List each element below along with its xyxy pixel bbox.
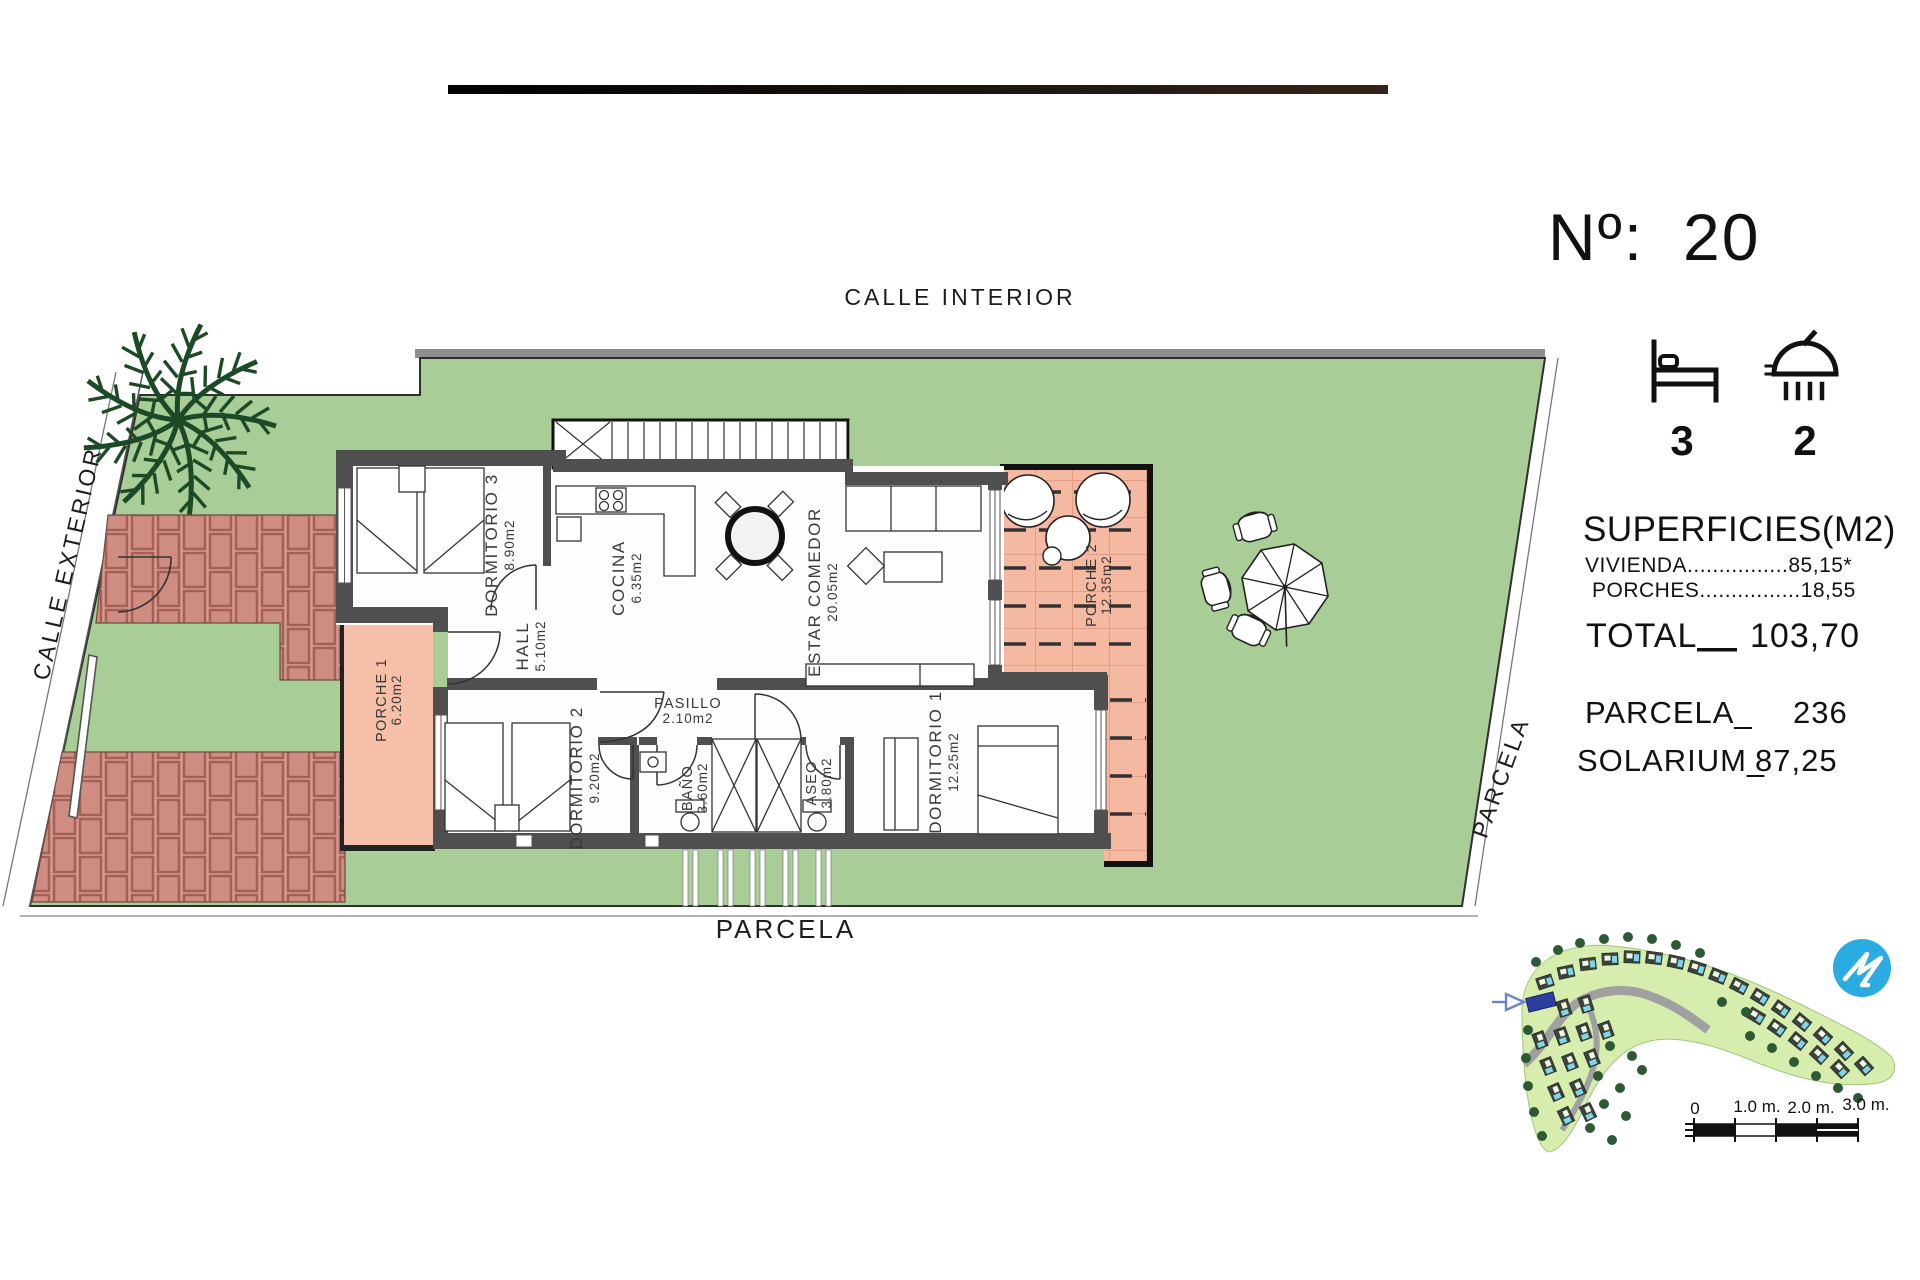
tv-bench: [806, 664, 974, 686]
scale-0: 0: [1690, 1099, 1699, 1118]
porch-stool: [1043, 547, 1061, 565]
legend-parcela-value: 236: [1793, 695, 1848, 730]
parcela-label-bottom: PARCELA: [716, 914, 856, 944]
room-label-aseo: ASEO: [804, 760, 820, 805]
room-label-estar-comedor: ESTAR COMEDOR: [805, 507, 824, 677]
room-area-aseo: 3.80m2: [819, 757, 834, 808]
brand-logo: [1833, 939, 1891, 997]
plan-canvas: CALLE INTERIOR CALLE EXTERIOR PARCELA PA…: [0, 0, 1920, 1280]
legend-solarium-label: SOLARIUM_: [1577, 743, 1765, 778]
room-area-porche2: 12.35m2: [1099, 555, 1114, 615]
plot-number-label: Nº:: [1548, 200, 1644, 274]
room-label-dormitorio1: DORMITORIO 1: [926, 690, 945, 834]
legend-total-underscore: [1697, 648, 1737, 652]
plot-number-value: 20: [1683, 200, 1760, 274]
room-label-cocina: COCINA: [609, 540, 628, 616]
room-label-pasillo: PASILLO: [654, 696, 722, 712]
room-area-cocina: 6.35m2: [629, 552, 644, 603]
room-label-dormitorio2: DORMITORIO 2: [567, 706, 586, 850]
bed-icon: [1654, 342, 1716, 400]
top-divider-bar: [448, 85, 1388, 94]
room-label-porche1: PORCHE 1: [374, 658, 390, 742]
scale-bar: 0 1.0 m. 2.0 m. 3.0 m.: [1685, 1095, 1890, 1142]
street-label-calle-interior: CALLE INTERIOR: [844, 284, 1075, 310]
plot-pointer-icon: [1492, 994, 1524, 1010]
scale-1m: 1.0 m.: [1733, 1097, 1780, 1116]
shower-icon: [1766, 333, 1836, 398]
coffee-table: [884, 552, 942, 582]
room-area-dormitorio3: 8.90m2: [502, 519, 517, 570]
room-label-hall: HALL: [513, 622, 532, 671]
bathroom-count: 2: [1793, 417, 1816, 464]
legend-vivienda: VIVIENDA................85,15*: [1585, 554, 1852, 577]
room-area-porche1: 6.20m2: [389, 674, 404, 725]
floor-plan-sheet: CALLE INTERIOR CALLE EXTERIOR PARCELA PA…: [0, 0, 1920, 1280]
legend-solarium-value: 87,25: [1755, 743, 1838, 778]
room-area-hall: 5.10m2: [533, 620, 548, 671]
legend-parcela-label: PARCELA_: [1585, 695, 1753, 730]
room-area-estar-comedor: 20.05m2: [825, 562, 840, 622]
dining-table: [728, 509, 782, 563]
scale-2m: 2.0 m.: [1787, 1098, 1834, 1117]
parcel-top-curb: [415, 349, 1545, 358]
room-area-dormitorio2: 9.20m2: [587, 752, 602, 803]
room-area-banio: 3.60m2: [695, 762, 710, 813]
porche1-edge-south: [340, 845, 435, 851]
legend-title: SUPERFICIES(M2): [1583, 510, 1896, 549]
bedroom-count: 3: [1670, 417, 1693, 464]
legend-total-label: TOTAL: [1586, 617, 1697, 655]
room-label-porche2: PORCHE 2: [1084, 543, 1100, 627]
room-area-pasillo: 2.10m2: [662, 711, 713, 726]
room-label-dormitorio3: DORMITORIO 3: [482, 473, 501, 617]
sofa: [846, 486, 981, 531]
legend-porches: PORCHES................18,55: [1592, 579, 1856, 602]
legend-total-value: 103,70: [1750, 617, 1860, 655]
porche1-edge-west: [340, 623, 344, 851]
room-label-banio: BAÑO: [679, 765, 696, 811]
room-area-dormitorio1: 12.25m2: [946, 732, 961, 792]
scale-3m: 3.0 m.: [1842, 1095, 1889, 1114]
